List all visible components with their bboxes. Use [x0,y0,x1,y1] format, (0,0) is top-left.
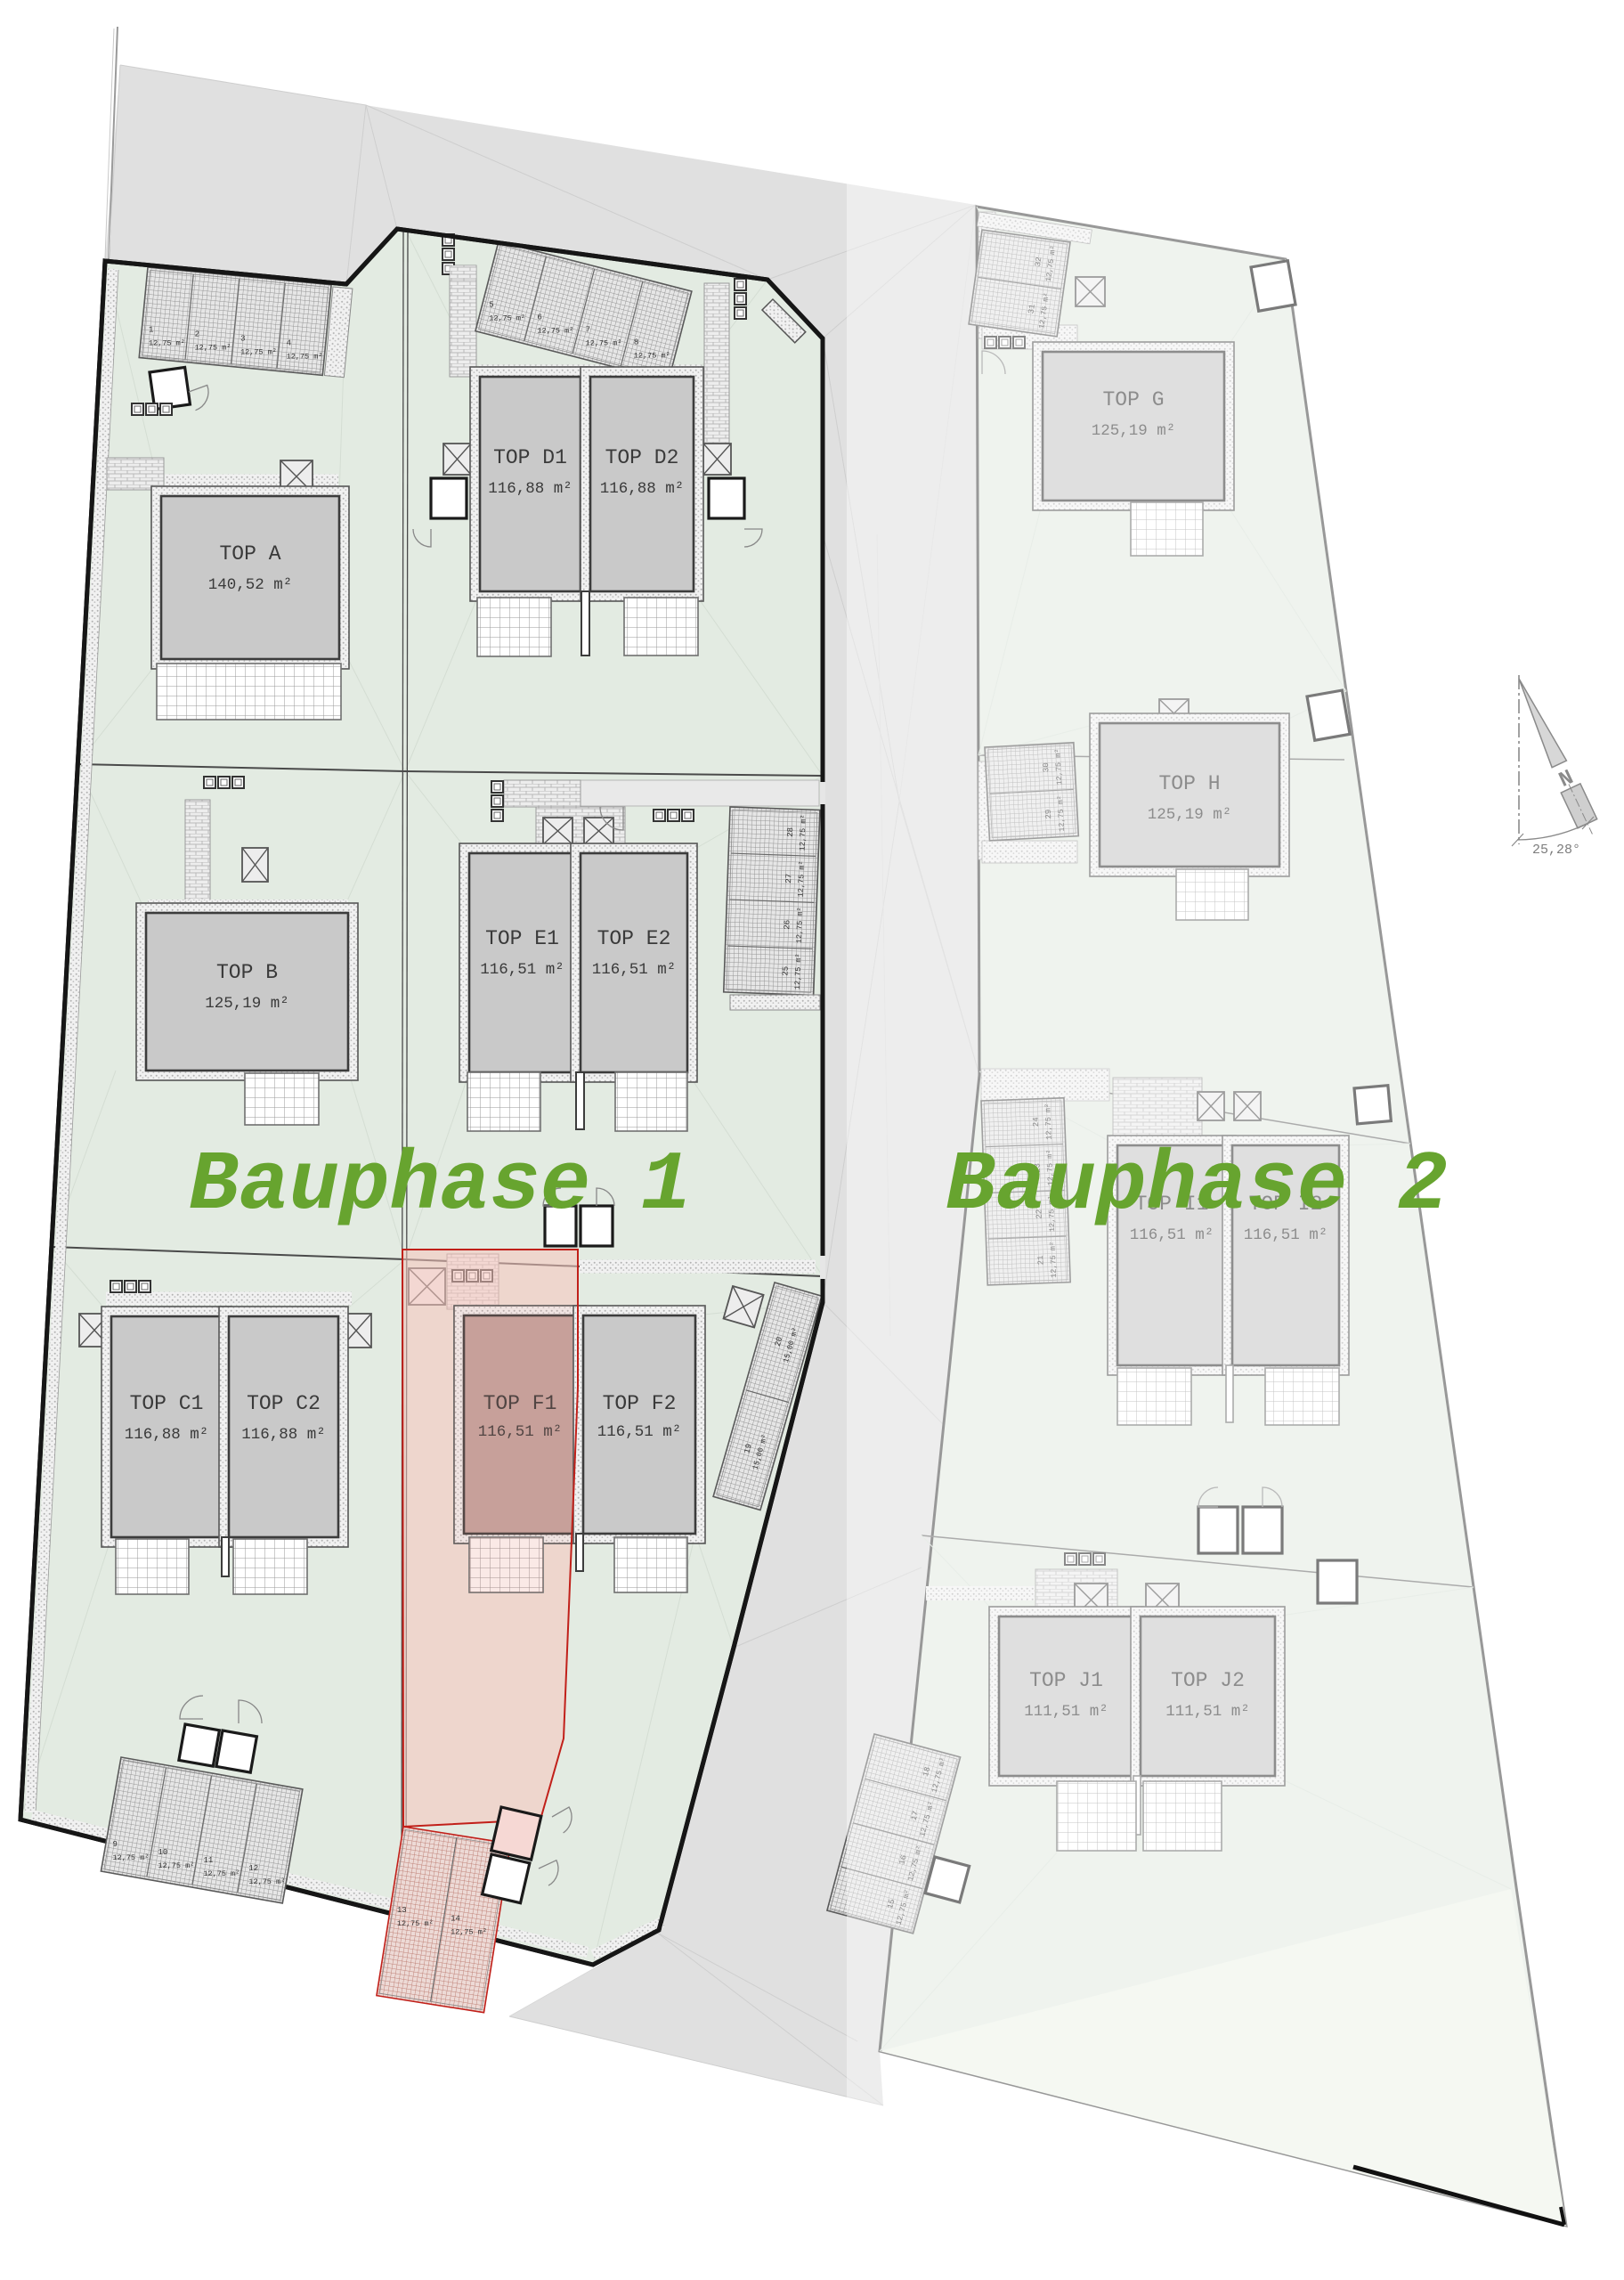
svg-text:12,75 m²: 12,75 m² [537,327,573,336]
svg-text:12,75 m²: 12,75 m² [397,1919,434,1928]
svg-text:12,75 m²: 12,75 m² [248,1877,285,1886]
svg-text:12,75 m²: 12,75 m² [797,860,807,897]
svg-text:12,75 m²: 12,75 m² [195,343,231,352]
svg-text:TOP A: TOP A [219,542,280,566]
svg-text:26: 26 [783,920,792,930]
svg-text:TOP C1: TOP C1 [130,1392,204,1415]
svg-text:14: 14 [451,1915,460,1924]
svg-text:TOP E1: TOP E1 [485,927,559,950]
svg-text:12: 12 [248,1864,258,1873]
svg-text:116,51 m²: 116,51 m² [592,961,677,979]
svg-text:8: 8 [634,338,638,347]
svg-text:116,88 m²: 116,88 m² [600,480,685,498]
svg-text:27: 27 [784,874,793,883]
svg-text:10: 10 [158,1848,167,1857]
svg-text:116,88 m²: 116,88 m² [241,1426,326,1444]
svg-text:5: 5 [489,301,493,310]
svg-text:12,75 m²: 12,75 m² [149,338,185,347]
svg-text:11: 11 [203,1856,213,1865]
svg-text:3: 3 [240,334,245,343]
svg-text:TOP C2: TOP C2 [247,1392,321,1415]
svg-text:TOP D2: TOP D2 [605,446,679,469]
svg-text:TOP E2: TOP E2 [597,927,671,950]
svg-text:7: 7 [586,326,590,335]
svg-text:1: 1 [149,325,153,334]
svg-text:12,75 m²: 12,75 m² [586,339,622,348]
svg-text:9: 9 [113,1840,118,1849]
svg-text:25: 25 [781,966,790,976]
svg-text:12,75 m²: 12,75 m² [113,1853,150,1862]
svg-text:28: 28 [786,827,795,837]
svg-text:116,88 m²: 116,88 m² [488,480,572,498]
svg-text:TOP F2: TOP F2 [603,1392,677,1415]
svg-text:TOP B: TOP B [216,961,278,984]
svg-text:12,75 m²: 12,75 m² [158,1861,194,1870]
svg-text:125,19 m²: 125,19 m² [205,995,289,1013]
svg-text:12,75 m²: 12,75 m² [793,953,803,989]
svg-text:4: 4 [287,338,291,347]
svg-text:2: 2 [195,330,199,338]
svg-text:12,75 m²: 12,75 m² [489,314,525,323]
svg-text:6: 6 [537,313,541,322]
svg-text:25,28°: 25,28° [1532,843,1580,858]
svg-text:116,88 m²: 116,88 m² [125,1426,209,1444]
svg-text:116,51 m²: 116,51 m² [597,1423,682,1441]
svg-text:13: 13 [397,1906,407,1915]
svg-text:12,75 m²: 12,75 m² [287,352,323,361]
svg-text:12,75 m²: 12,75 m² [795,907,805,943]
svg-text:140,52 m²: 140,52 m² [208,576,293,594]
svg-text:TOP D1: TOP D1 [493,446,567,469]
svg-text:12,75 m²: 12,75 m² [634,352,670,361]
svg-text:116,51 m²: 116,51 m² [480,961,564,979]
svg-text:Bauphase 2: Bauphase 2 [946,1139,1448,1234]
svg-text:12,75 m²: 12,75 m² [798,814,808,851]
svg-text:12,75 m²: 12,75 m² [451,1928,487,1937]
svg-text:12,75 m²: 12,75 m² [203,1869,240,1878]
svg-text:12,75 m²: 12,75 m² [240,347,277,356]
svg-text:Bauphase 1: Bauphase 1 [189,1139,691,1234]
